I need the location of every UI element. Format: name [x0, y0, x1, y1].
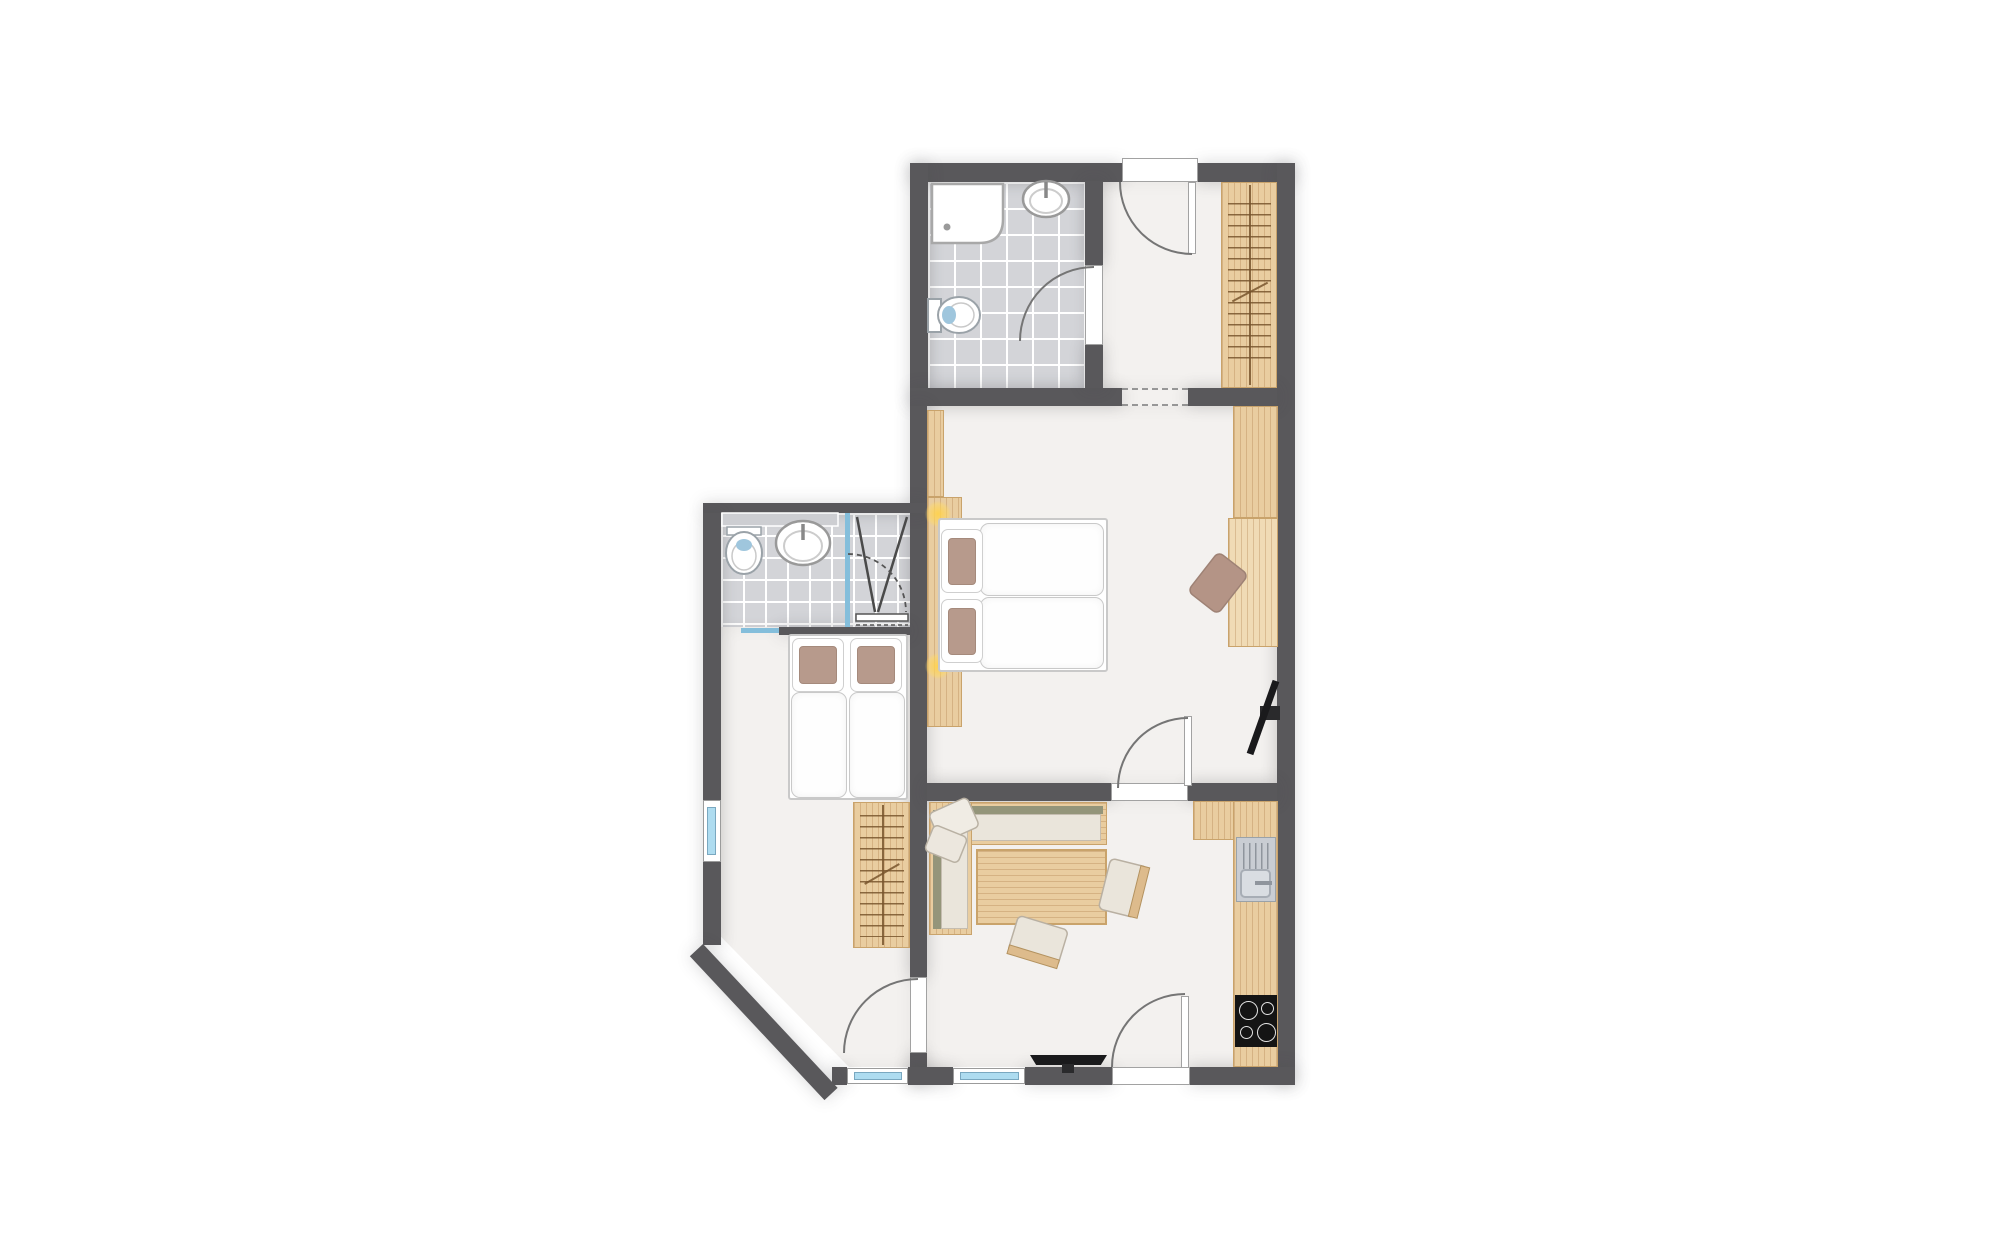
- dining-table: [976, 849, 1107, 925]
- wall-below-bathroom-b: [1188, 388, 1277, 406]
- twin-bed-pillow-right-inner: [857, 646, 895, 684]
- window-west-glазing: [707, 807, 716, 855]
- ensuite-floor: [721, 513, 910, 627]
- living-room-door-leaf: [1181, 996, 1189, 1068]
- sink-drainboard: [1243, 843, 1269, 869]
- window-west: [703, 800, 721, 862]
- headboard-wall-strip: [927, 410, 944, 497]
- hall-wardrobe: [1221, 182, 1277, 388]
- shower-glass-partition: [845, 513, 850, 627]
- window-south-2-glazing: [960, 1072, 1019, 1080]
- double-bed-duvet-bottom: [980, 597, 1104, 669]
- wall-top-left-segment: [910, 163, 1122, 182]
- bedroom-cabinet: [1233, 406, 1278, 518]
- twin-bed-duvet-right: [849, 692, 905, 798]
- main-bedroom-door-threshold: [1111, 783, 1188, 801]
- ensuite-entry-glass: [741, 628, 779, 633]
- wall-bottom-d: [1190, 1067, 1295, 1085]
- wall-spine: [910, 406, 927, 977]
- burner-4: [1257, 1023, 1276, 1042]
- double-bed-duvet-top: [980, 523, 1104, 596]
- sink-tap: [1255, 881, 1272, 885]
- living-tv-stand: [1062, 1064, 1074, 1073]
- bathroom-floor: [928, 182, 1085, 388]
- wall-leftsection-top: [703, 503, 927, 513]
- kitchen-sink-unit: [1236, 837, 1276, 902]
- wall-topsection-left: [910, 163, 928, 406]
- cooktop: [1235, 995, 1277, 1047]
- second-bedroom-wardrobe: [853, 802, 910, 948]
- hall-wardrobe-rail: [1249, 185, 1251, 385]
- burner-1: [1239, 1001, 1258, 1020]
- wall-bathroom-right-a: [1085, 181, 1103, 265]
- wall-below-bathroom-a: [910, 388, 1122, 406]
- wall-bedroom-living-b: [1188, 783, 1277, 801]
- wall-bottom-b: [908, 1067, 953, 1085]
- wall-bathroom-right-b: [1085, 345, 1103, 388]
- wall-bottom-a: [832, 1067, 847, 1085]
- window-south-1: [847, 1068, 908, 1084]
- wall-bedroom-living-a: [927, 783, 1111, 801]
- corner-bench-left-backrest: [933, 810, 941, 929]
- open-passage-dashed: [1122, 388, 1188, 406]
- entrance-door-threshold: [1122, 158, 1198, 182]
- burner-3: [1240, 1026, 1253, 1039]
- bedroom-desk: [1228, 518, 1278, 647]
- double-bed-pillow-top-inner: [948, 538, 976, 585]
- floor-plan-canvas: [0, 0, 2000, 1250]
- second-bedroom-door-leaf: [910, 977, 927, 1053]
- entrance-door-leaf: [1188, 182, 1196, 254]
- wall-right-outer: [1277, 163, 1295, 1085]
- main-bedroom-door-leaf: [1184, 716, 1192, 786]
- double-bed-pillow-bottom-inner: [948, 608, 976, 655]
- bathroom-door-leaf: [1085, 265, 1103, 345]
- twin-bed-pillow-left-inner: [799, 646, 837, 684]
- corner-bench-left-seat: [941, 810, 968, 929]
- second-wardrobe-rail: [882, 805, 884, 945]
- window-south-2: [953, 1068, 1025, 1084]
- window-south-1-glazing: [854, 1072, 902, 1080]
- wall-left-outer: [703, 513, 721, 945]
- burner-2: [1261, 1002, 1274, 1015]
- living-room-door-threshold: [1112, 1067, 1190, 1085]
- twin-bed-duvet-left: [791, 692, 847, 798]
